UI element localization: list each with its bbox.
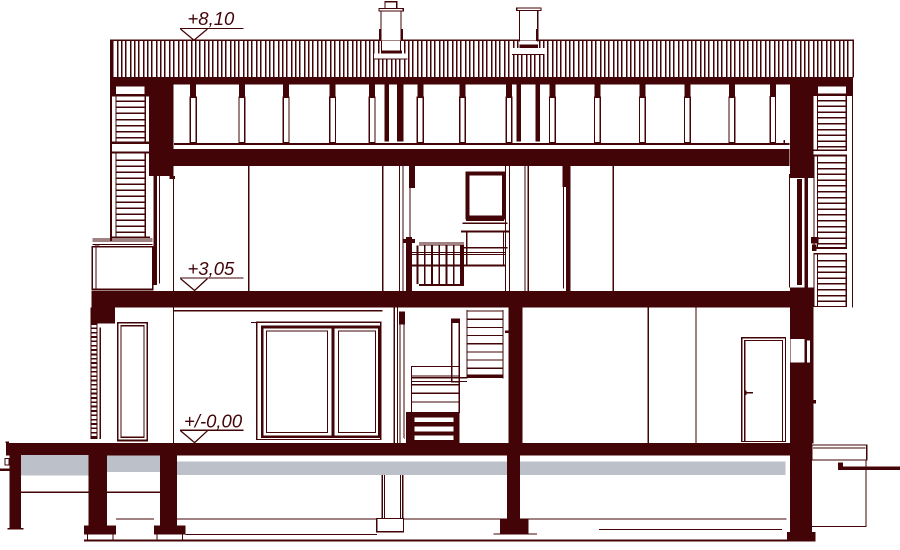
svg-text:+8,10: +8,10 — [188, 8, 236, 29]
svg-text:+/-0,00: +/-0,00 — [184, 410, 243, 431]
svg-text:+3,05: +3,05 — [188, 258, 236, 279]
